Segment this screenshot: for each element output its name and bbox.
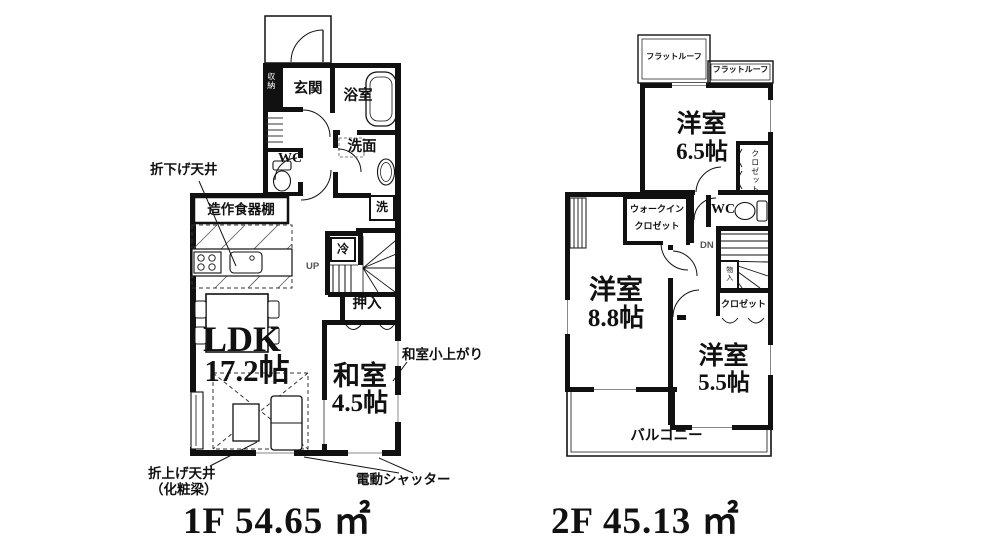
cupboard-label: 造作食器棚: [196, 203, 286, 218]
room-label-wc-2f: WC: [708, 202, 738, 217]
room-label-washitsu: 和室: [324, 362, 396, 392]
closet55-door: [722, 318, 764, 323]
room-size-88: 8.8帖: [568, 305, 664, 333]
annotation-dropped-ceiling: 折下げ天井: [150, 163, 218, 178]
tv-board-icon: [191, 392, 203, 449]
room-label-wc-1f: WC: [274, 151, 306, 166]
closet-label-65: クロゼット: [750, 149, 759, 193]
room-label-oshiire: 押入: [338, 297, 396, 313]
annotation-raised-ceiling-2: （化粧梁）: [150, 483, 218, 498]
stairs-dn-label: DN: [700, 241, 714, 251]
room-label-88: 洋室: [576, 276, 656, 306]
stairs-up-label: UP: [306, 262, 319, 272]
floor2-area-label: 2F 45.13 ㎡: [551, 502, 739, 543]
room-label-genkan: 玄関: [284, 82, 332, 98]
wic-label-line1: ウォークイン: [620, 205, 694, 215]
floorplan-canvas: 折下げ天井 造作食器棚 収納 玄関 浴室 洗面 WC 洗 冷 UP 押入 LDK…: [0, 0, 1000, 560]
flat-roof-label-1: フラットルーフ: [639, 53, 709, 62]
monoire-label: 物入: [725, 266, 733, 286]
porch-outline: [265, 16, 331, 63]
annotation-electric-shutter: 電動シャッター: [356, 473, 451, 488]
flat-roof-label-2: フラットルーフ: [710, 66, 771, 75]
oshiire-door: [346, 325, 394, 330]
room-label-bathroom: 浴室: [334, 89, 382, 105]
annotation-tatami-step: 和室小上がり: [402, 348, 483, 363]
entry-storage-label: 収納: [266, 72, 275, 110]
sofa-icon: [233, 396, 302, 450]
room-size-ldk: 17.2帖: [183, 354, 311, 388]
room-label-washroom: 洗面: [336, 140, 388, 156]
left-wall-hatch: [570, 198, 586, 248]
closet-label-55: クロゼット: [718, 300, 769, 310]
entry-steps: [266, 118, 283, 142]
room-label-65: 洋室: [664, 111, 739, 139]
toilet-icon-2f: [735, 201, 767, 221]
wic-label-line2: クロゼット: [620, 222, 694, 232]
room-size-55: 5.5帖: [678, 370, 770, 395]
kitchen-counter: [192, 249, 292, 276]
fridge-label: 冷: [331, 243, 355, 256]
room-size-washitsu: 4.5帖: [318, 390, 402, 418]
floor1-area-label: 1F 54.65 ㎡: [183, 502, 371, 543]
room-size-65: 6.5帖: [656, 139, 748, 164]
annotation-raised-ceiling-1: 折上げ天井: [148, 467, 216, 482]
washer-label: 洗: [370, 201, 394, 214]
room-label-55: 洋室: [686, 343, 761, 371]
balcony-label: バルコニー: [614, 429, 719, 445]
